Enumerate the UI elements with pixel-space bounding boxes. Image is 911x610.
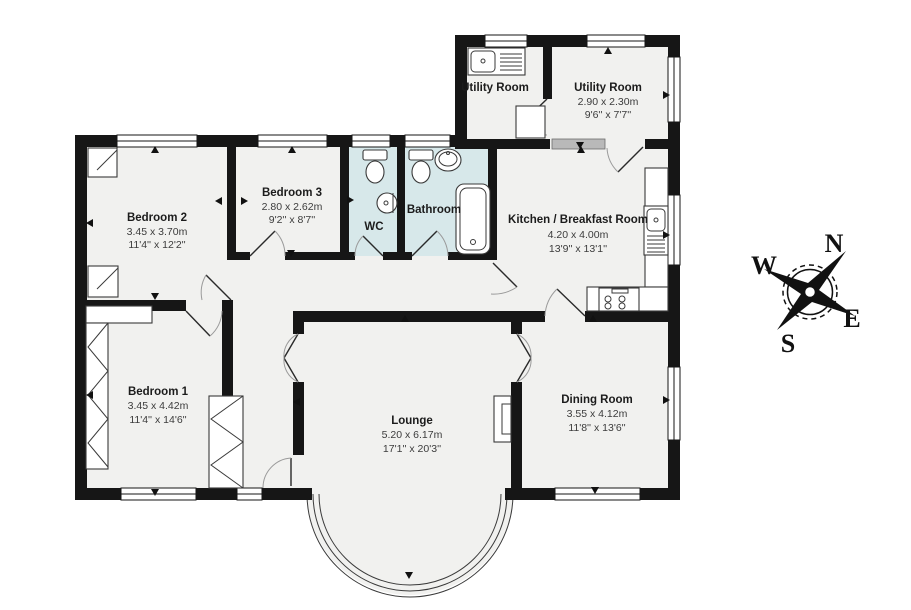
wall-lounge-top [293,311,545,322]
room-name: Utility Room [574,82,642,94]
room-dim-metric: 2.80 x 2.62m [262,201,323,213]
wall-bed1-top-stub [222,300,233,311]
wall-utility-divider [543,41,552,99]
label-dining: Dining Room 3.55 x 4.12m 11'8'' x 13'6'' [561,394,633,434]
room-name: Lounge [391,415,433,427]
window-bedroom3 [258,135,327,147]
bathtub-icon [456,184,490,254]
wall-utilityleft-bottom [455,139,550,149]
bathroom-basin-icon [435,149,461,171]
room-dim-imperial: 9'6'' x 7'7'' [585,109,631,121]
wall-bed3-bottom-a [236,252,250,260]
room-name: Bedroom 1 [128,386,189,398]
wall-kitchen-bottom [585,311,674,322]
wall-left [75,135,87,500]
room-dim-metric: 4.20 x 4.00m [548,229,609,241]
compass-west-label: W [751,251,777,280]
room-dim-metric: 3.45 x 3.70m [127,226,188,238]
window-dining-bottom [555,488,640,500]
window-kitchen-side [668,195,680,265]
label-utility-left: Utility Room [461,82,529,94]
floorplan-drawing: Bedroom 2 3.45 x 3.70m 11'4'' x 12'2'' B… [0,0,911,610]
label-bedroom2: Bedroom 2 3.45 x 3.70m 11'4'' x 12'2'' [127,212,188,251]
utility-appliance [516,106,545,138]
label-bedroom3: Bedroom 3 2.80 x 2.62m 9'2'' x 8'7'' [262,187,323,226]
utility-sink-icon [468,48,525,75]
wall-wc-bottom [383,252,412,260]
compass-east-label: E [843,304,860,333]
compass-north-label: N [825,229,844,258]
label-wc: WC [364,221,383,233]
compass-rose: N E S W [751,229,861,358]
fireplace-icon [494,388,522,447]
floorplan-page: Bedroom 2 3.45 x 3.70m 11'4'' x 12'2'' B… [0,0,911,610]
window-wc [352,135,390,147]
wall-lounge-dining-a [511,311,522,334]
window-utility-left-top [485,35,527,47]
room-name: Kitchen / Breakfast Room [508,214,648,226]
wall-utilityright-bottom [645,139,668,149]
room-name: WC [364,221,383,233]
wall-bed3-bottom-b [285,252,355,260]
room-name: Bedroom 3 [262,187,322,199]
room-name: Bedroom 2 [127,212,187,224]
room-dim-imperial: 17'1'' x 20'3'' [383,443,441,455]
window-bedroom2 [117,135,197,147]
compass-hub [805,287,816,298]
room-dim-imperial: 11'4'' x 14'6'' [129,414,186,426]
room-name: Dining Room [561,394,633,406]
bedroom2-wardrobe [88,266,118,297]
room-dim-metric: 2.90 x 2.30m [578,96,639,108]
wall-lounge-left-b [293,382,304,455]
wc-basin-icon [377,193,397,213]
wall-lounge-left-a [293,311,304,334]
room-dim-imperial: 9'2'' x 8'7'' [269,214,315,226]
room-name: Bathroom [407,204,461,216]
room-dim-imperial: 11'8'' x 13'6'' [568,422,625,434]
bedroom2-wardrobe [88,148,117,177]
room-name: Utility Room [461,82,529,94]
label-bedroom1: Bedroom 1 3.45 x 4.42m 11'4'' x 14'6'' [128,386,189,426]
compass-south-label: S [781,329,795,358]
wall-bed2-bed3 [227,141,236,260]
window-utility-right-top [587,35,645,47]
wall-wc-bath [397,141,405,260]
window-utility-right-side [668,57,680,122]
room-dim-metric: 3.55 x 4.12m [567,408,628,420]
window-bathroom [405,135,450,147]
room-dim-imperial: 11'4'' x 12'2'' [128,239,185,251]
room-dim-metric: 3.45 x 4.42m [128,400,189,412]
window-dining-side [668,367,680,440]
window-hall-bottom [237,488,262,500]
label-bathroom: Bathroom [407,204,461,216]
bay-window-floor [307,492,513,595]
room-dim-imperial: 13'9'' x 13'1'' [549,243,607,255]
stove-icon [599,288,639,311]
room-dim-metric: 5.20 x 6.17m [382,429,443,441]
